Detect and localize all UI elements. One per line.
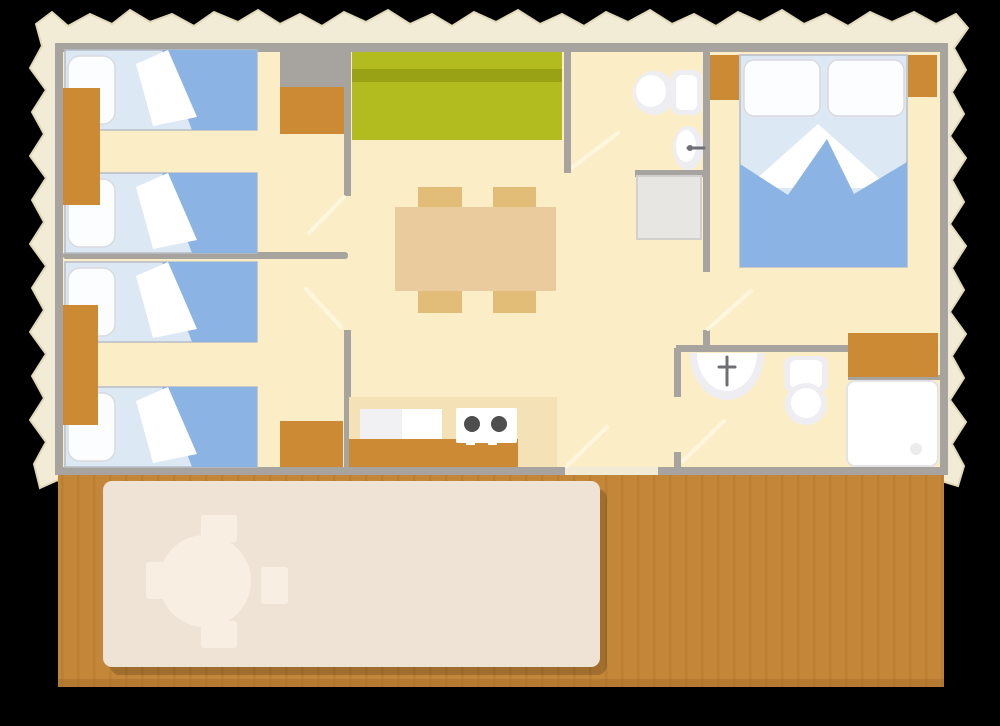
wardrobe: [63, 305, 98, 425]
shower-drain: [910, 443, 922, 455]
toilet-tank-inner: [676, 75, 697, 110]
wall-left: [55, 43, 63, 475]
dining-table: [395, 207, 556, 291]
kitchen-sink-drainer: [402, 409, 442, 439]
dining-chair: [418, 187, 462, 209]
wardrobe: [280, 87, 344, 134]
shower-tray: [847, 381, 938, 466]
bathroom-cabinet: [848, 333, 938, 377]
wardrobe: [63, 88, 100, 205]
wall-bottom-left: [55, 467, 565, 475]
fridge-unit: [637, 176, 701, 239]
wall-bottom-right: [658, 467, 948, 475]
wall-bathroom-left-upper: [674, 348, 681, 397]
round-table: [159, 535, 251, 627]
dining-chair: [418, 290, 462, 313]
wall-bathroom-left-lower: [674, 452, 681, 472]
toilet-bowl-inner: [791, 388, 821, 418]
wall-bathroom-top: [676, 345, 852, 352]
sofa: [352, 52, 562, 140]
dining-chair: [493, 187, 536, 209]
terrace-deck-edge: [58, 679, 944, 687]
terrace-chair: [261, 567, 288, 604]
kitchen: [349, 397, 557, 467]
wall-entry-block: [280, 48, 347, 88]
wall-right: [940, 43, 948, 475]
kitchen-sink: [360, 409, 402, 439]
terrace: [58, 475, 944, 687]
nightstand: [710, 55, 739, 100]
pillow: [828, 60, 904, 116]
toilet-bowl-inner: [636, 75, 666, 107]
floor-plan-screenshot: [0, 0, 1000, 726]
wall-master-left-upper: [703, 52, 710, 272]
hob-burner: [491, 416, 507, 432]
hob-knob: [488, 440, 497, 445]
nightstand: [908, 55, 937, 97]
floor-plan-image: [0, 0, 1000, 726]
hob-burner: [464, 416, 480, 432]
dining-chair: [493, 290, 536, 313]
hob-knob: [466, 440, 475, 445]
pillow: [744, 60, 820, 116]
wall-wc-left: [564, 52, 571, 173]
wardrobe: [280, 421, 343, 467]
master-bedroom: [710, 55, 937, 267]
basin-tap-knob: [687, 145, 693, 151]
washbasin-inner: [676, 130, 696, 162]
sofa-backrest: [352, 69, 562, 82]
